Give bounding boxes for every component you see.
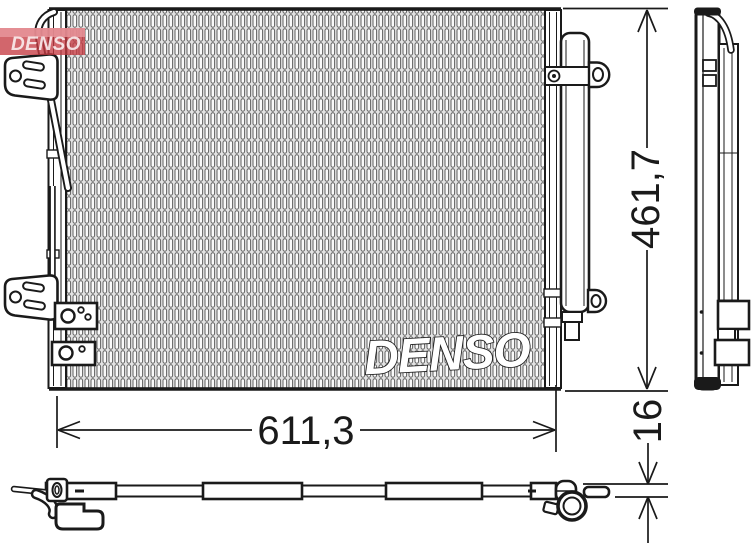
- core-watermark-text: DENSO: [363, 324, 532, 386]
- mounting-bracket-top: [5, 54, 58, 99]
- brand-logo-text: DENSO: [11, 34, 81, 55]
- side-view: [694, 8, 749, 391]
- pipe-connection-block-upper: [55, 303, 97, 329]
- width-value: 611,3: [257, 409, 354, 453]
- brand-logo: DENSO: [0, 28, 85, 55]
- height-value: 461,7: [624, 149, 668, 249]
- bottom-plate: [56, 504, 103, 529]
- side-port-block-lower: [715, 340, 749, 365]
- side-clamp: [703, 60, 716, 71]
- top-view: [14, 479, 609, 529]
- bracket-hole: [10, 292, 21, 303]
- depth-dimension: 16: [583, 399, 670, 543]
- side-clamp: [703, 75, 716, 86]
- drawing-canvas: DENSO 461,7 611,3: [0, 0, 752, 547]
- side-port-block-upper: [718, 301, 749, 329]
- mounting-bracket-bottom: [5, 275, 58, 319]
- pipe-connection-block-lower: [52, 342, 95, 365]
- bracket-hole: [10, 71, 21, 82]
- condenser-technical-drawing: DENSO 461,7 611,3: [0, 0, 752, 547]
- width-dimension: 611,3: [57, 385, 556, 453]
- front-view: DENSO: [5, 9, 609, 389]
- depth-value: 16: [626, 399, 670, 444]
